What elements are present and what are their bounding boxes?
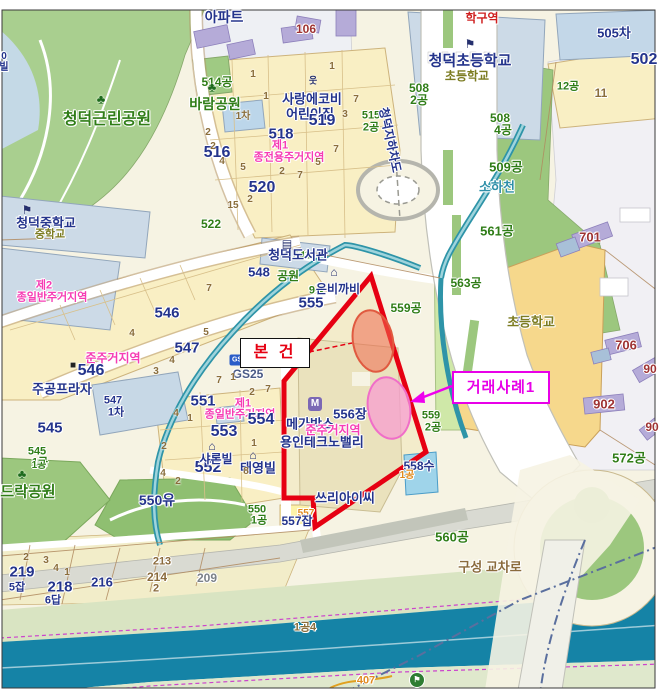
building-court <box>352 372 370 386</box>
block-553 <box>215 405 244 424</box>
road-median <box>443 150 453 205</box>
road-median <box>452 215 461 295</box>
comp1-callout-box: 거래사례1 <box>452 371 550 404</box>
basemap-svg <box>0 0 663 700</box>
subject-callout-box: 본 건 <box>240 338 310 368</box>
building-court <box>340 436 356 448</box>
block-505cha <box>556 10 663 60</box>
map-canvas[interactable]: 아파트106505차502청덕초등학교초등학교학구역514공바람공원청덕근린공원… <box>0 0 663 700</box>
parcel-558su <box>404 452 438 495</box>
road-median <box>443 8 453 48</box>
block-1cha <box>222 100 265 132</box>
